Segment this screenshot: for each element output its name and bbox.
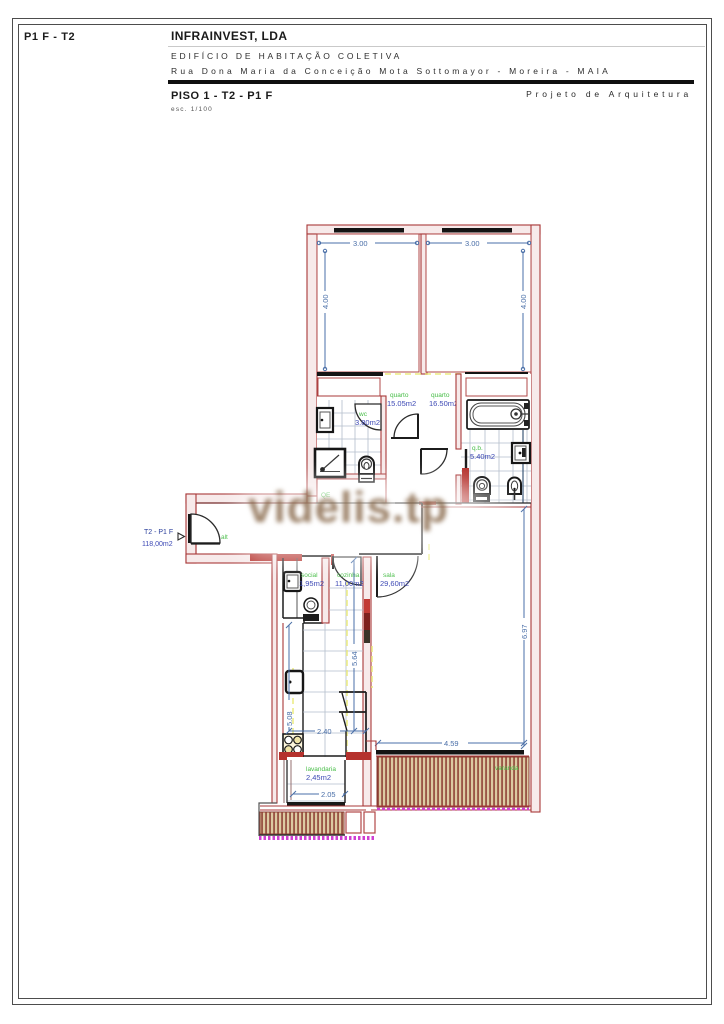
svg-text:cozinha: cozinha bbox=[337, 572, 360, 579]
svg-text:4.59: 4.59 bbox=[444, 739, 459, 748]
svg-text:alt: alt bbox=[221, 534, 228, 541]
svg-text:6.97: 6.97 bbox=[520, 624, 529, 639]
svg-text:wc: wc bbox=[358, 411, 368, 418]
svg-text:lavandaria: lavandaria bbox=[306, 766, 336, 773]
svg-text:varanda: varanda bbox=[495, 765, 519, 772]
svg-text:2.05: 2.05 bbox=[321, 790, 336, 799]
svg-text:3.00: 3.00 bbox=[465, 239, 480, 248]
svg-text:quarto: quarto bbox=[431, 392, 450, 399]
svg-text:118,00m2: 118,00m2 bbox=[142, 541, 173, 548]
svg-text:29,60m2: 29,60m2 bbox=[380, 579, 409, 588]
svg-text:16.50m2: 16.50m2 bbox=[429, 399, 458, 408]
svg-text:3.00: 3.00 bbox=[353, 239, 368, 248]
svg-text:T2 - P1 F: T2 - P1 F bbox=[144, 529, 173, 536]
svg-text:15.05m2: 15.05m2 bbox=[387, 399, 416, 408]
svg-text:sala: sala bbox=[383, 572, 395, 579]
svg-text:2,45m2: 2,45m2 bbox=[306, 773, 331, 782]
svg-text:1,95m2: 1,95m2 bbox=[299, 579, 324, 588]
svg-text:3.80m2: 3.80m2 bbox=[355, 418, 380, 427]
svg-text:4.00: 4.00 bbox=[519, 294, 528, 309]
svg-text:q.b.: q.b. bbox=[472, 445, 483, 452]
svg-text:4.00: 4.00 bbox=[321, 294, 330, 309]
svg-text:social: social bbox=[301, 572, 318, 579]
svg-text:quarto: quarto bbox=[390, 392, 409, 399]
svg-text:5.08: 5.08 bbox=[285, 711, 294, 726]
svg-text:5.64: 5.64 bbox=[350, 651, 359, 666]
svg-text:5.40m2: 5.40m2 bbox=[470, 452, 495, 461]
svg-text:2.40: 2.40 bbox=[317, 727, 332, 736]
svg-text:11,00m2: 11,00m2 bbox=[335, 579, 364, 588]
